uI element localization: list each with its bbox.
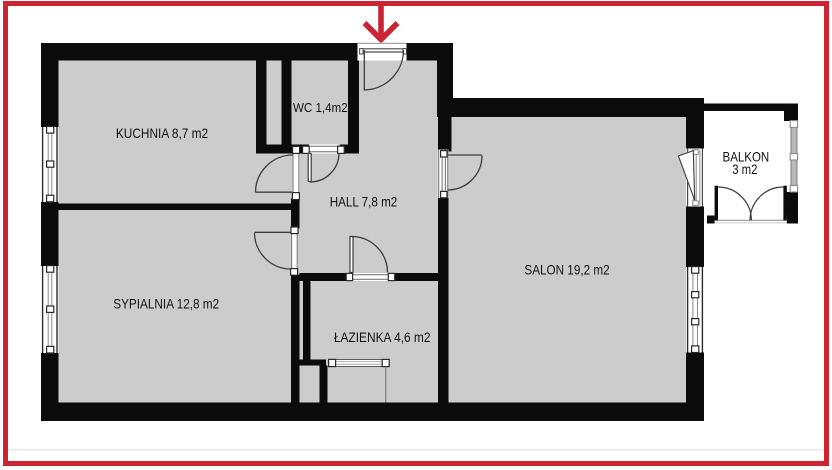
svg-text:SALON 19,2 m2: SALON 19,2 m2	[524, 263, 609, 278]
svg-text:ŁAZIENKA 4,6 m2: ŁAZIENKA 4,6 m2	[334, 330, 431, 345]
svg-text:3 m2: 3 m2	[732, 162, 757, 177]
svg-text:SYPIALNIA 12,8 m2: SYPIALNIA 12,8 m2	[113, 297, 219, 312]
svg-text:WC 1,4m2: WC 1,4m2	[293, 100, 348, 115]
svg-text:KUCHNIA 8,7 m2: KUCHNIA 8,7 m2	[116, 126, 208, 141]
svg-text:HALL 7,8 m2: HALL 7,8 m2	[330, 194, 398, 209]
